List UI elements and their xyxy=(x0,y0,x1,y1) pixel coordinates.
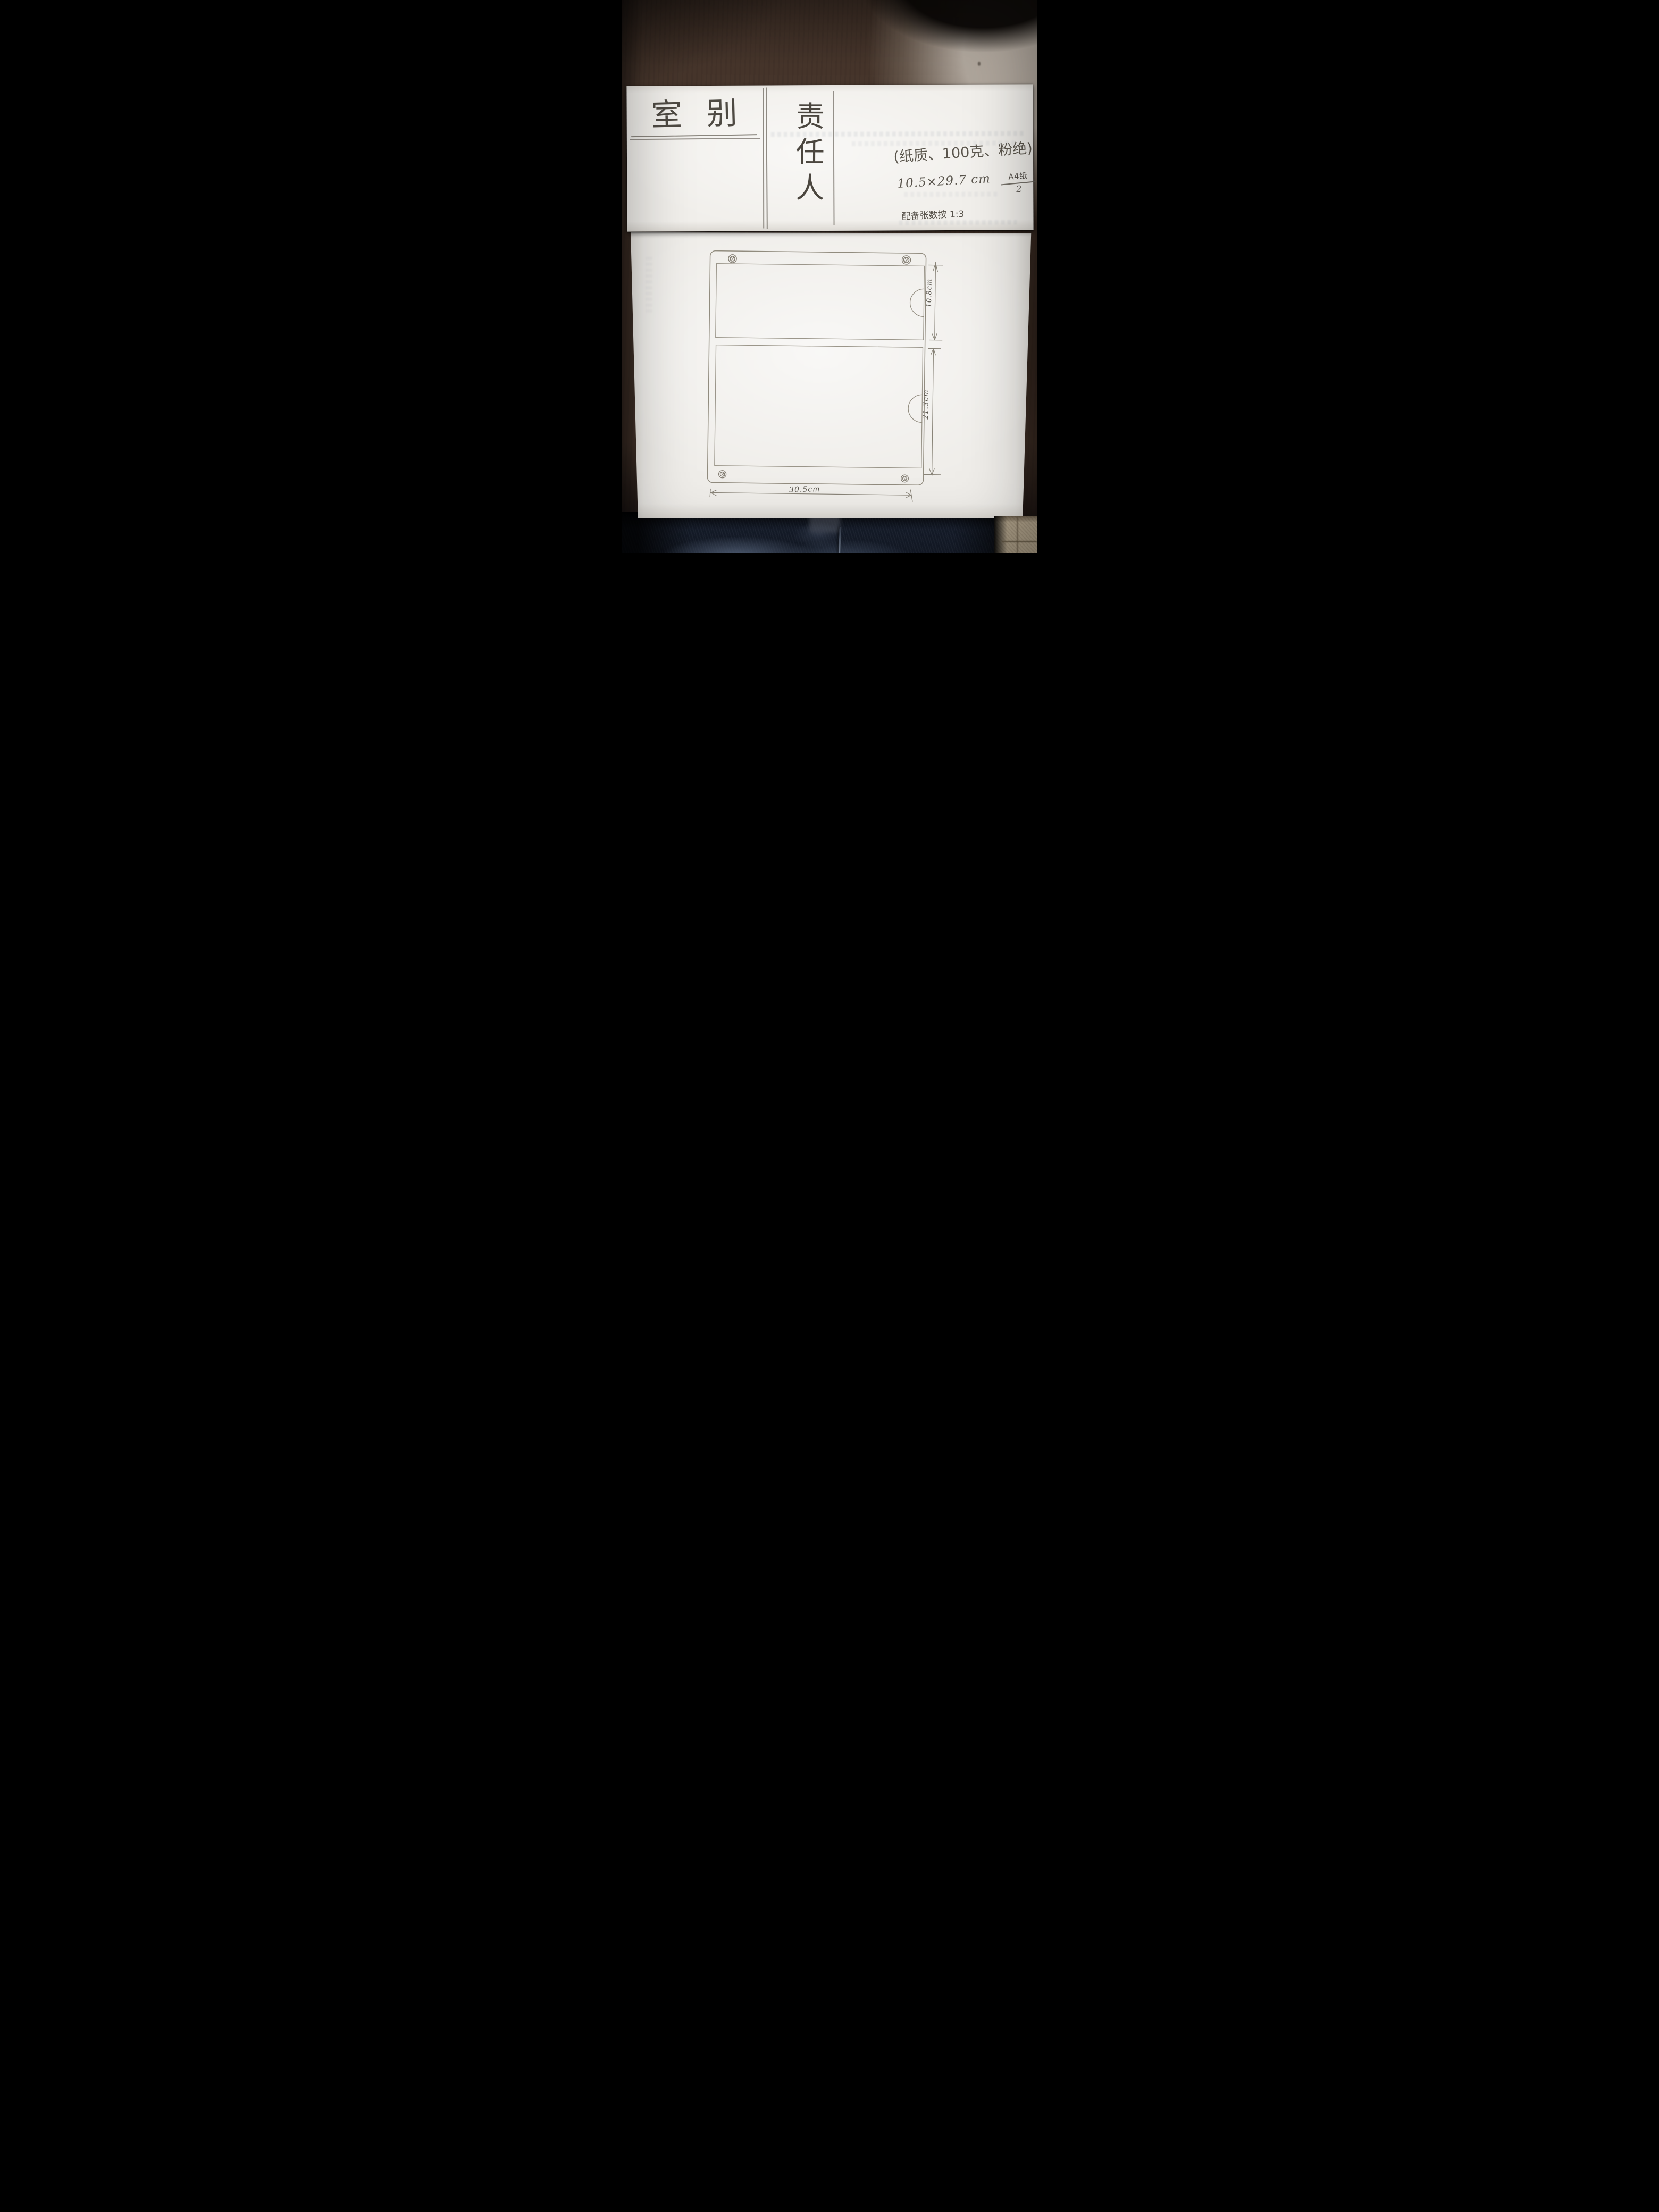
underline-stroke xyxy=(630,138,760,140)
print-bleedthrough-smudge xyxy=(852,140,1018,146)
paper-strip-header-card: 室别 责任人 (纸质、100克、粉绝) 10.5×29.7 cm A4纸 2 配… xyxy=(626,84,1033,231)
panel-linework xyxy=(701,249,949,507)
print-bleedthrough-smudge xyxy=(904,192,1000,197)
tile-grout-line xyxy=(1002,541,1037,542)
panel-outer-frame xyxy=(707,250,926,485)
panel-bottom-section xyxy=(715,345,923,468)
print-bleedthrough-smudge xyxy=(771,131,1026,137)
photo-desk-scene: 室别 责任人 (纸质、100克、粉绝) 10.5×29.7 cm A4纸 2 配… xyxy=(622,0,1037,553)
screw-icon-bottom-right xyxy=(901,475,909,482)
paper-size-note: 10.5×29.7 cm xyxy=(897,172,991,191)
paper-sheet-with-drawing: 10.8cm 21.3cm 30.5cm xyxy=(627,232,1032,518)
dim-label-bottom-height: 21.3cm xyxy=(921,384,931,424)
a4-half-fraction: A4纸 2 xyxy=(1000,169,1037,196)
panel-top-section xyxy=(716,264,925,340)
screw-icon-top-left xyxy=(728,255,736,263)
screw-icon-top-right xyxy=(902,256,910,264)
dim-label-width: 30.5cm xyxy=(782,485,827,495)
jeans-seam-highlight xyxy=(839,527,841,553)
photographer-lap-jeans xyxy=(622,512,1007,553)
fraction-denominator: 2 xyxy=(1001,183,1037,196)
print-bleedthrough-smudge xyxy=(899,220,1017,225)
dim-label-top-height: 10.8cm xyxy=(925,273,934,313)
print-bleedthrough-smudge xyxy=(646,257,652,315)
floor-tile xyxy=(994,516,1037,553)
fraction-numerator: A4纸 xyxy=(1000,169,1036,183)
underline-stroke xyxy=(631,134,757,137)
column-divider-line xyxy=(766,88,767,229)
screw-icon-bottom-left xyxy=(719,471,726,478)
column-divider-line xyxy=(833,91,834,225)
responsible-person-label: 责任人 xyxy=(786,101,829,223)
finger-notch-bottom xyxy=(908,395,923,422)
finger-notch-top xyxy=(910,289,924,316)
panel-drawing: 10.8cm 21.3cm 30.5cm xyxy=(701,249,949,507)
room-type-label: 室别 xyxy=(651,97,762,131)
column-divider-line xyxy=(763,88,764,229)
tile-grout-line xyxy=(1017,516,1018,553)
table-speck xyxy=(978,62,981,66)
